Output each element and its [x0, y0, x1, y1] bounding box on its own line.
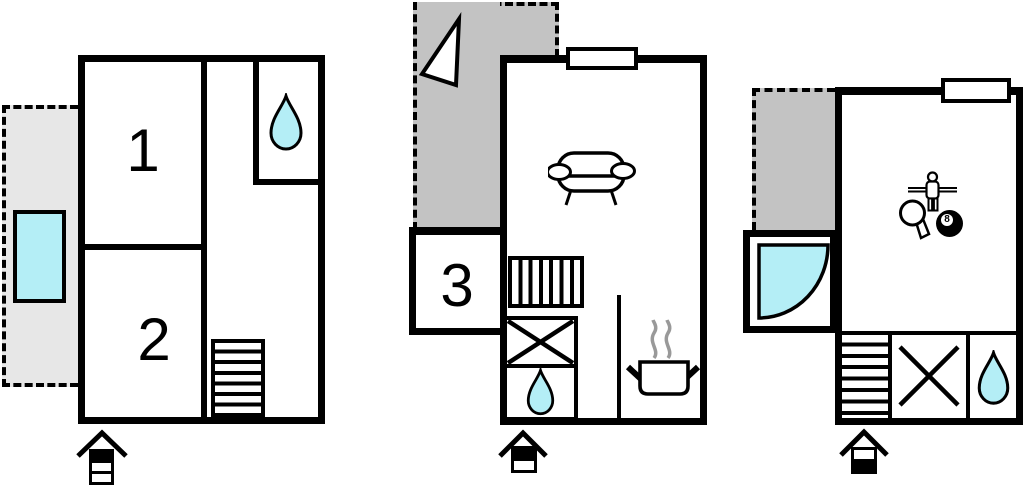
stairs-icon: [508, 256, 584, 308]
room-2-label: 2: [124, 310, 184, 370]
entrance-post-icon: [89, 449, 114, 485]
room-3-wall: [409, 227, 507, 235]
stairs-icon: [842, 335, 888, 418]
window-icon: [941, 78, 1011, 103]
sofa-icon: [548, 148, 640, 208]
terrace-area: [752, 88, 835, 230]
eight-ball-number: 8: [944, 214, 950, 226]
kitchen-divider-wall: [617, 295, 621, 418]
exterior-wall: [1016, 87, 1023, 425]
entrance-post-icon: [511, 446, 537, 473]
room-3-label: 3: [427, 256, 487, 316]
corner-shower-icon: [757, 243, 831, 321]
pool-icon: [13, 210, 66, 303]
interior-wall: [888, 331, 892, 422]
water-drop-icon: [977, 350, 1010, 407]
stairs-icon: [211, 339, 265, 417]
water-drop-icon: [523, 368, 558, 417]
bathroom-wall: [253, 179, 323, 185]
sink-box: [503, 364, 578, 421]
room-1-label: 1: [113, 121, 173, 181]
exterior-wall: [835, 87, 842, 425]
table-tennis-paddle-icon: [898, 198, 932, 242]
interior-wall: [201, 58, 207, 421]
floor-plan-canvas: 1 2 3: [0, 0, 1024, 485]
water-drop-icon: [269, 93, 303, 153]
shower-icon: [898, 345, 960, 407]
exterior-wall: [835, 418, 1023, 425]
bathroom-wall: [253, 58, 259, 185]
window-icon: [566, 47, 638, 70]
interior-wall: [966, 331, 970, 422]
interior-wall: [81, 244, 204, 250]
north-arrow-icon: [413, 10, 467, 94]
room-3-wall: [409, 328, 507, 335]
eight-ball-icon: 8: [936, 210, 963, 237]
room-3-wall: [409, 227, 416, 335]
stove-pot-icon: [623, 316, 703, 400]
entrance-post-icon: [851, 447, 877, 474]
shower-icon: [503, 316, 578, 368]
